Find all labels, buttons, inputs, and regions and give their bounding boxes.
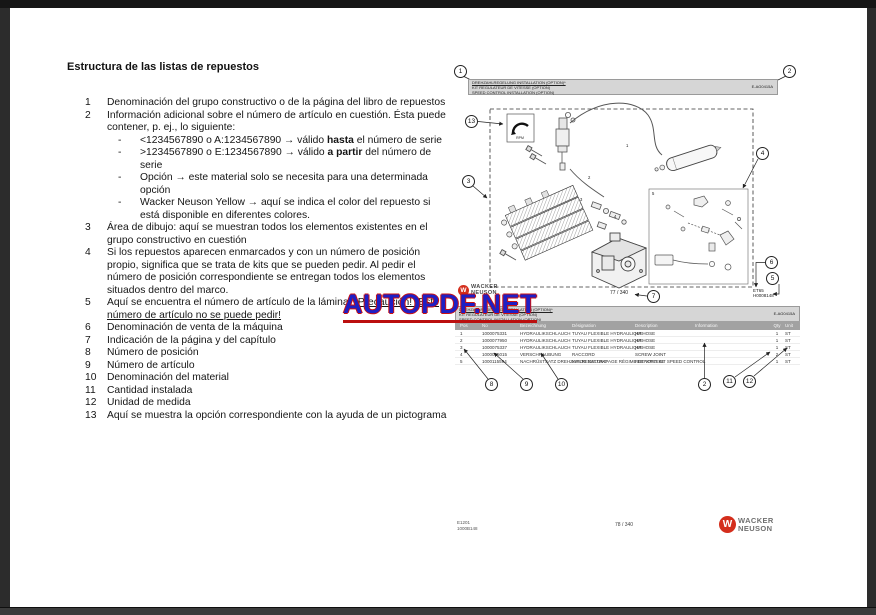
list-item: 1Denominación del grupo constructivo o d… — [85, 97, 451, 110]
list-item: 12Unidad de medida — [85, 397, 451, 410]
table-row: 51000115594NACHRÜSTSATZ DREHZAHLREGELUNG… — [455, 358, 800, 365]
kit-parts — [655, 196, 742, 270]
callout-6: 6 — [765, 256, 778, 269]
valve-block — [497, 180, 593, 263]
figure1-page-ref: 77 / 340 — [610, 290, 628, 296]
callout-12: 12 — [743, 375, 756, 388]
callout-3: 3 — [462, 175, 475, 188]
rpm-gauge-icon — [513, 124, 528, 133]
machine-reference: ET65 H0008148 — [753, 288, 774, 298]
viewer-frame-left — [0, 8, 10, 607]
table-row: 11000075331HYDRAULIKSCHLAUCHTUYAU FLEXIB… — [455, 330, 800, 337]
hydraulic-pump — [592, 233, 646, 288]
hydraulic-hose-2 — [570, 169, 604, 197]
callout-10: 10 — [555, 378, 568, 391]
figure-exploded-diagram: RPM — [452, 57, 799, 305]
callout-4: 4 — [756, 147, 769, 160]
instruction-list: 1Denominación del grupo constructivo o d… — [85, 97, 451, 422]
bolt — [500, 250, 516, 260]
list-subitem: -<1234567890 o A:1234567890 → válido has… — [118, 135, 451, 148]
rpm-gauge-needle — [511, 130, 516, 135]
list-subitem: -Opción → este material solo se necesita… — [118, 172, 451, 197]
drawing-area-border — [490, 109, 753, 287]
pictogram-label: RPM — [516, 136, 524, 140]
document-page[interactable]: Estructura de las listas de repuestos 1D… — [10, 8, 867, 607]
table-row: 41000015015VERSCHRAUBUNGRACCORDSCREW JOI… — [455, 351, 800, 358]
list-item: 11Cantidad instalada — [85, 385, 451, 398]
hydraulic-hose-1 — [570, 103, 662, 155]
option-pictogram-box — [507, 114, 534, 142]
table-row: 21000077950HYDRAULIKSCHLAUCHTUYAU FLEXIB… — [455, 337, 800, 344]
callout-leader-lines — [463, 76, 786, 296]
part-label-4: 4 — [614, 214, 617, 219]
callout-11: 11 — [723, 375, 736, 388]
figure1-title-en: SPEED CONTROL INSTALLATION (OPTION) — [472, 91, 774, 96]
callout-1: 1 — [454, 65, 467, 78]
table-row: 31000075337HYDRAULIKSCHLAUCHTUYAU FLEXIB… — [455, 344, 800, 351]
viewer-taskbar — [0, 607, 876, 615]
callout-2b: 2 — [698, 378, 711, 391]
part-label-3: 3 — [580, 197, 583, 202]
part-label-1: 1 — [626, 143, 629, 148]
list-item: 8Número de posición — [85, 347, 451, 360]
accumulator-cylinder — [653, 142, 723, 176]
viewer-frame-right — [867, 8, 876, 607]
footer-document-number: E1201 1000B148 — [457, 520, 478, 531]
list-item: 9Número de artículo — [85, 360, 451, 373]
list-item: 10Denominación del material — [85, 372, 451, 385]
callout-5: 5 — [766, 272, 779, 285]
footer-page-number: 78 / 340 — [615, 522, 633, 528]
list-item: 7Indicación de la página y del capítulo — [85, 335, 451, 348]
callout-7: 7 — [647, 290, 660, 303]
list-item: 6Denominación de venta de la máquina — [85, 322, 451, 335]
list-subitem: -Wacker Neuson Yellow → aquí se indica e… — [118, 197, 451, 222]
callout-13: 13 — [465, 115, 478, 128]
part-label-2: 2 — [588, 175, 591, 180]
solenoid-valve — [556, 112, 575, 170]
viewer-frame-top — [0, 0, 876, 8]
list-subitem: ->1234567890 o E:1234567890 → válido a p… — [118, 147, 451, 172]
list-item: 13Aquí se muestra la opción correspondie… — [85, 410, 451, 423]
figure2-sheet-code: E-AG0415A — [774, 312, 795, 317]
callout-9: 9 — [520, 378, 533, 391]
callout-8: 8 — [485, 378, 498, 391]
fittings — [591, 202, 626, 229]
callout-2: 2 — [783, 65, 796, 78]
kit-frame — [649, 189, 748, 284]
figure1-sheet-code: E-AG0415A — [752, 85, 773, 90]
page-title: Estructura de las listas de repuestos — [67, 61, 259, 73]
watermark: AUTOPDF.NET — [343, 289, 537, 323]
list-item: 2Información adicional sobre el número d… — [85, 110, 451, 135]
part-label-5: 5 — [652, 191, 655, 196]
figure1-title-bar: DREHZAHLREGELUNG INSTALLATION (OPTION)* … — [468, 79, 778, 95]
wacker-w-icon: W — [719, 516, 736, 533]
wacker-neuson-logo-footer: W WACKERNEUSON — [719, 516, 774, 533]
list-item: 3Área de dibujo: aquí se muestran todos … — [85, 222, 451, 247]
screws — [526, 146, 546, 164]
